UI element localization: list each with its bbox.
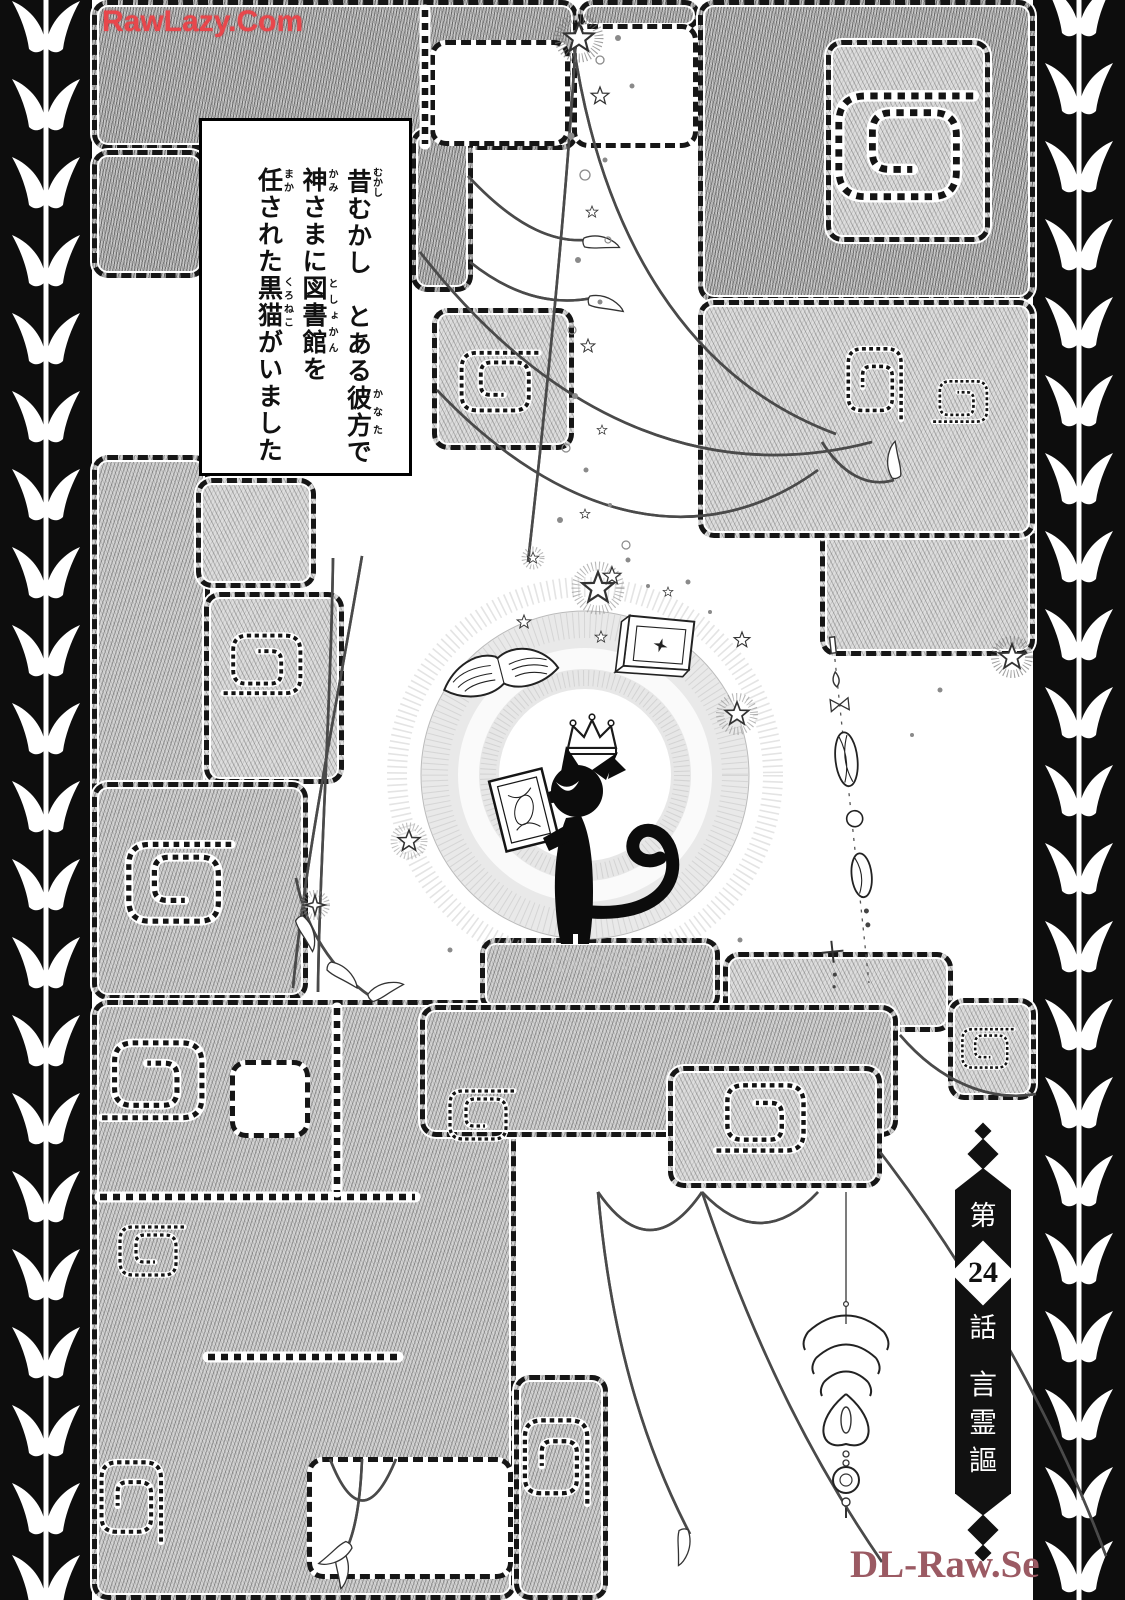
banner-point-bottom [955, 1494, 1011, 1516]
chapter-prefix: 第 [970, 1200, 997, 1234]
site-watermark-bottom: DL-Raw.Se [850, 1542, 1040, 1587]
chapter-title: 言霊謳 [969, 1366, 997, 1480]
chapter-banner: 第 24 話 言霊謳 [951, 1122, 1015, 1562]
narration-box: 昔むかしむかし とある彼方かなたで神かみさまに図書館としょかんを任まかされた黒猫… [199, 118, 412, 476]
chapter-number-diamond: 24 [950, 1240, 1015, 1305]
crown-icon [568, 714, 616, 754]
diamond-finial [975, 1123, 992, 1140]
diamond-finial [967, 1514, 998, 1545]
flower-drop-ornament [804, 1192, 889, 1518]
banner-point-top [955, 1168, 1011, 1190]
manga-page: 昔むかしむかし とある彼方かなたで神かみさまに図書館としょかんを任まかされた黒猫… [0, 0, 1125, 1600]
banner-body: 第 24 話 言霊謳 [955, 1190, 1011, 1494]
narration-text: 昔むかしむかし とある彼方かなたで神かみさまに図書館としょかんを任まかされた黒猫… [248, 167, 382, 472]
site-watermark-top: RawLazy.Com [102, 5, 303, 39]
chapter-suffix: 話 [970, 1312, 997, 1346]
bead-string-ornament [789, 636, 883, 990]
chapter-number: 24 [968, 1256, 998, 1290]
diamond-finial [967, 1138, 998, 1169]
